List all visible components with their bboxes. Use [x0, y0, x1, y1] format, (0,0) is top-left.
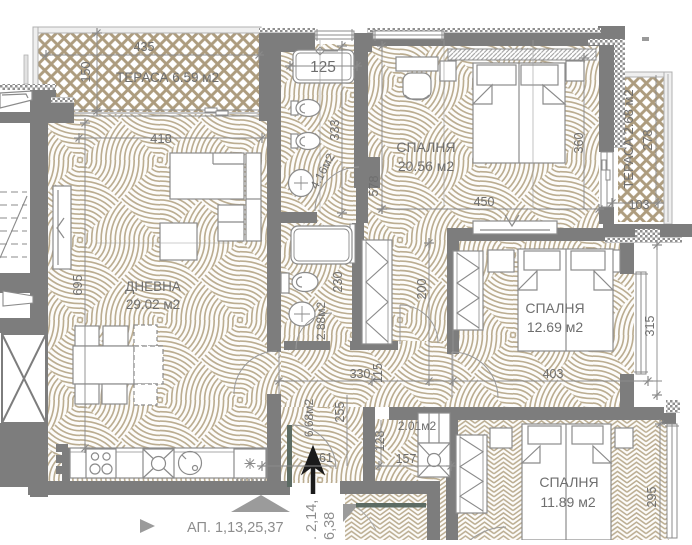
svg-text:СПАЛНЯ: СПАЛНЯ — [396, 139, 455, 155]
svg-text:128: 128 — [373, 431, 387, 452]
svg-text:ТЕРАСА 6.59 м2: ТЕРАСА 6.59 м2 — [116, 70, 219, 85]
svg-text:278: 278 — [641, 130, 655, 151]
svg-text:315: 315 — [643, 316, 657, 337]
svg-text:125: 125 — [310, 59, 336, 76]
svg-text:255: 255 — [333, 402, 347, 423]
svg-text:20.56 м2: 20.56 м2 — [398, 158, 455, 174]
svg-text:61: 61 — [319, 451, 333, 465]
svg-text:435: 435 — [134, 40, 155, 54]
svg-text:150: 150 — [79, 62, 93, 83]
svg-text:403: 403 — [543, 367, 564, 381]
svg-text:103: 103 — [629, 198, 650, 212]
svg-text:. 2,14,: . 2,14, — [304, 500, 320, 540]
svg-text:115: 115 — [371, 363, 385, 383]
svg-text:11.89 м2: 11.89 м2 — [540, 494, 596, 510]
svg-text:2.88м2: 2.88м2 — [314, 302, 328, 341]
svg-text:360: 360 — [572, 133, 586, 154]
svg-text:СПАЛНЯ: СПАЛНЯ — [525, 300, 584, 316]
svg-text:330: 330 — [350, 367, 371, 381]
svg-text:АП. 1,13,25,37: АП. 1,13,25,37 — [187, 520, 284, 536]
svg-text:29.02 м2: 29.02 м2 — [126, 297, 180, 312]
svg-text:ДНЕВНА: ДНЕВНА — [125, 279, 181, 294]
svg-text:295: 295 — [645, 487, 659, 508]
svg-text:157: 157 — [396, 452, 417, 466]
svg-text:230: 230 — [331, 272, 345, 293]
svg-text:200: 200 — [415, 279, 429, 300]
svg-text:695: 695 — [71, 275, 85, 296]
svg-text:6.68м2: 6.68м2 — [302, 399, 316, 438]
svg-text:2.01м2: 2.01м2 — [398, 419, 437, 433]
svg-text:12.69 м2: 12.69 м2 — [527, 319, 584, 335]
svg-text:418: 418 — [150, 131, 172, 146]
svg-text:СПАЛНЯ: СПАЛНЯ — [539, 474, 598, 490]
svg-text:333: 333 — [328, 120, 342, 141]
svg-text:450: 450 — [474, 195, 495, 209]
svg-text:ТЕРАСА 2.68 м2: ТЕРАСА 2.68 м2 — [621, 89, 636, 188]
svg-text:6,38: 6,38 — [322, 512, 338, 540]
svg-text:578: 578 — [367, 176, 381, 197]
